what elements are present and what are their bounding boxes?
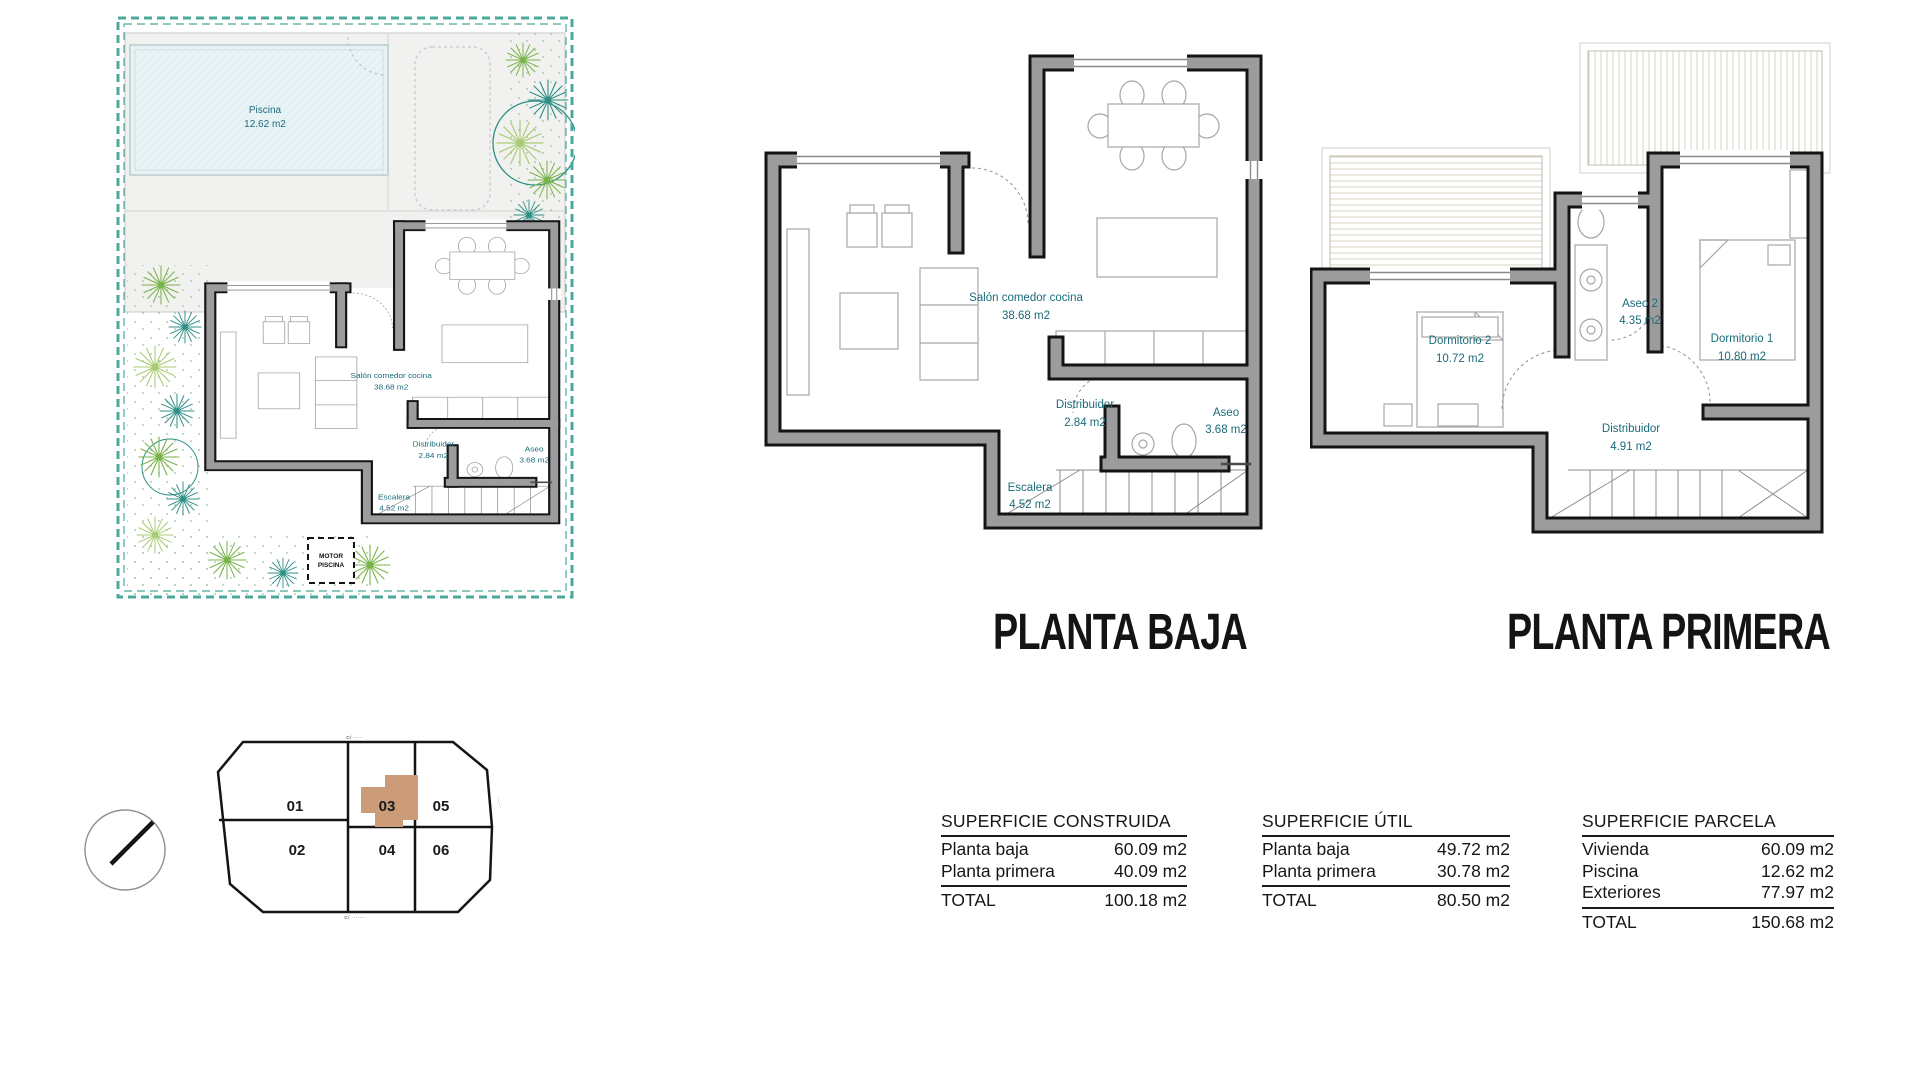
plot-02: 02 — [289, 842, 306, 859]
total-label: TOTAL — [1582, 912, 1637, 934]
table-row: Vivienda 60.09 m2 — [1582, 839, 1834, 861]
table-total-row: TOTAL 80.50 m2 — [1262, 887, 1510, 912]
row-label: Piscina — [1582, 861, 1638, 883]
pool-area: 12.62 m2 — [244, 119, 286, 130]
room-area-aseo2: 4.35 m2 — [1619, 315, 1661, 327]
room-label-dormitorio2: Dormitorio 2 — [1429, 335, 1492, 347]
total-label: TOTAL — [941, 890, 996, 912]
pool-motor-box: MOTOR PISCINA — [308, 538, 354, 583]
table-title: SUPERFICIE PARCELA — [1582, 811, 1834, 837]
row-label: Planta baja — [1262, 839, 1350, 861]
plot-05: 05 — [433, 798, 450, 815]
table-superficie-construida: SUPERFICIE CONSTRUIDA Planta baja 60.09 … — [941, 811, 1187, 912]
room-label-distribuidor: Distribuidor — [1602, 423, 1660, 435]
north-compass — [75, 800, 175, 900]
title-planta-baja: PLANTA BAJA — [987, 602, 1253, 654]
table-total-row: TOTAL 150.68 m2 — [1582, 909, 1834, 934]
total-value: 100.18 m2 — [1104, 890, 1187, 912]
row-value: 49.72 m2 — [1437, 839, 1510, 861]
planta-primera-drawing: Dormitorio 2 10.72 m2 Aseo 2 4.35 m2 Dor… — [1310, 40, 1850, 560]
row-label: Exteriores — [1582, 882, 1661, 904]
room-label-aseo2: Aseo 2 — [1622, 298, 1658, 310]
table-superficie-parcela: SUPERFICIE PARCELA Vivienda 60.09 m2 Pis… — [1582, 811, 1834, 933]
pool: Piscina 12.62 m2 — [130, 45, 388, 175]
window — [1370, 266, 1510, 286]
street-label-bottom: C/ ······· — [344, 915, 365, 920]
table-row: Planta baja 60.09 m2 — [941, 839, 1187, 861]
planta-baja-drawing: Salón comedor cocina 38.68 m2 Distribuid… — [760, 40, 1270, 560]
room-area-dormitorio2: 10.72 m2 — [1436, 353, 1484, 365]
motor-label-2: PISCINA — [318, 562, 345, 569]
row-label: Planta primera — [941, 861, 1055, 883]
total-value: 150.68 m2 — [1751, 912, 1834, 934]
toilet — [1578, 206, 1604, 238]
row-label: Planta baja — [941, 839, 1029, 861]
pool-label: Piscina — [249, 105, 282, 116]
compass-needle — [111, 822, 153, 864]
row-value: 30.78 m2 — [1437, 861, 1510, 883]
table-row: Planta primera 30.78 m2 — [1262, 861, 1510, 883]
plot-map: 01 02 03 04 05 06 C/ ····· C/ ······· ··… — [215, 735, 505, 920]
room-area-dormitorio1: 10.80 m2 — [1718, 351, 1766, 363]
motor-label-1: MOTOR — [319, 553, 343, 560]
room-label-dormitorio1: Dormitorio 1 — [1711, 333, 1774, 345]
table-total-row: TOTAL 100.18 m2 — [941, 887, 1187, 912]
table-row: Planta primera 40.09 m2 — [941, 861, 1187, 883]
row-value: 40.09 m2 — [1114, 861, 1187, 883]
row-value: 77.97 m2 — [1761, 882, 1834, 904]
window — [1680, 150, 1790, 170]
terrace-hatch-left — [1322, 148, 1550, 284]
table-row: Exteriores 77.97 m2 — [1582, 882, 1834, 904]
plot-01: 01 — [287, 798, 304, 815]
table-superficie-util: SUPERFICIE ÚTIL Planta baja 49.72 m2 Pla… — [1262, 811, 1510, 912]
row-value: 60.09 m2 — [1761, 839, 1834, 861]
table-row: Piscina 12.62 m2 — [1582, 861, 1834, 883]
window — [1582, 190, 1638, 210]
street-label-right: ····· — [496, 797, 503, 808]
vanity — [1575, 245, 1607, 360]
street-label-top: C/ ····· — [346, 735, 363, 740]
plot-03: 03 — [379, 798, 396, 815]
table-row: Planta baja 49.72 m2 — [1262, 839, 1510, 861]
plot-06: 06 — [433, 842, 450, 859]
title-planta-primera: PLANTA PRIMERA — [1507, 602, 1803, 654]
total-value: 80.50 m2 — [1437, 890, 1510, 912]
plot-04: 04 — [379, 842, 396, 859]
row-label: Planta primera — [1262, 861, 1376, 883]
total-label: TOTAL — [1262, 890, 1317, 912]
site-plan-drawing: Piscina 12.62 m2 MOTOR PI — [115, 15, 575, 600]
table-title: SUPERFICIE CONSTRUIDA — [941, 811, 1187, 837]
row-value: 60.09 m2 — [1114, 839, 1187, 861]
table-title: SUPERFICIE ÚTIL — [1262, 811, 1510, 837]
row-value: 12.62 m2 — [1761, 861, 1834, 883]
room-area-distribuidor: 4.91 m2 — [1610, 441, 1652, 453]
row-label: Vivienda — [1582, 839, 1649, 861]
